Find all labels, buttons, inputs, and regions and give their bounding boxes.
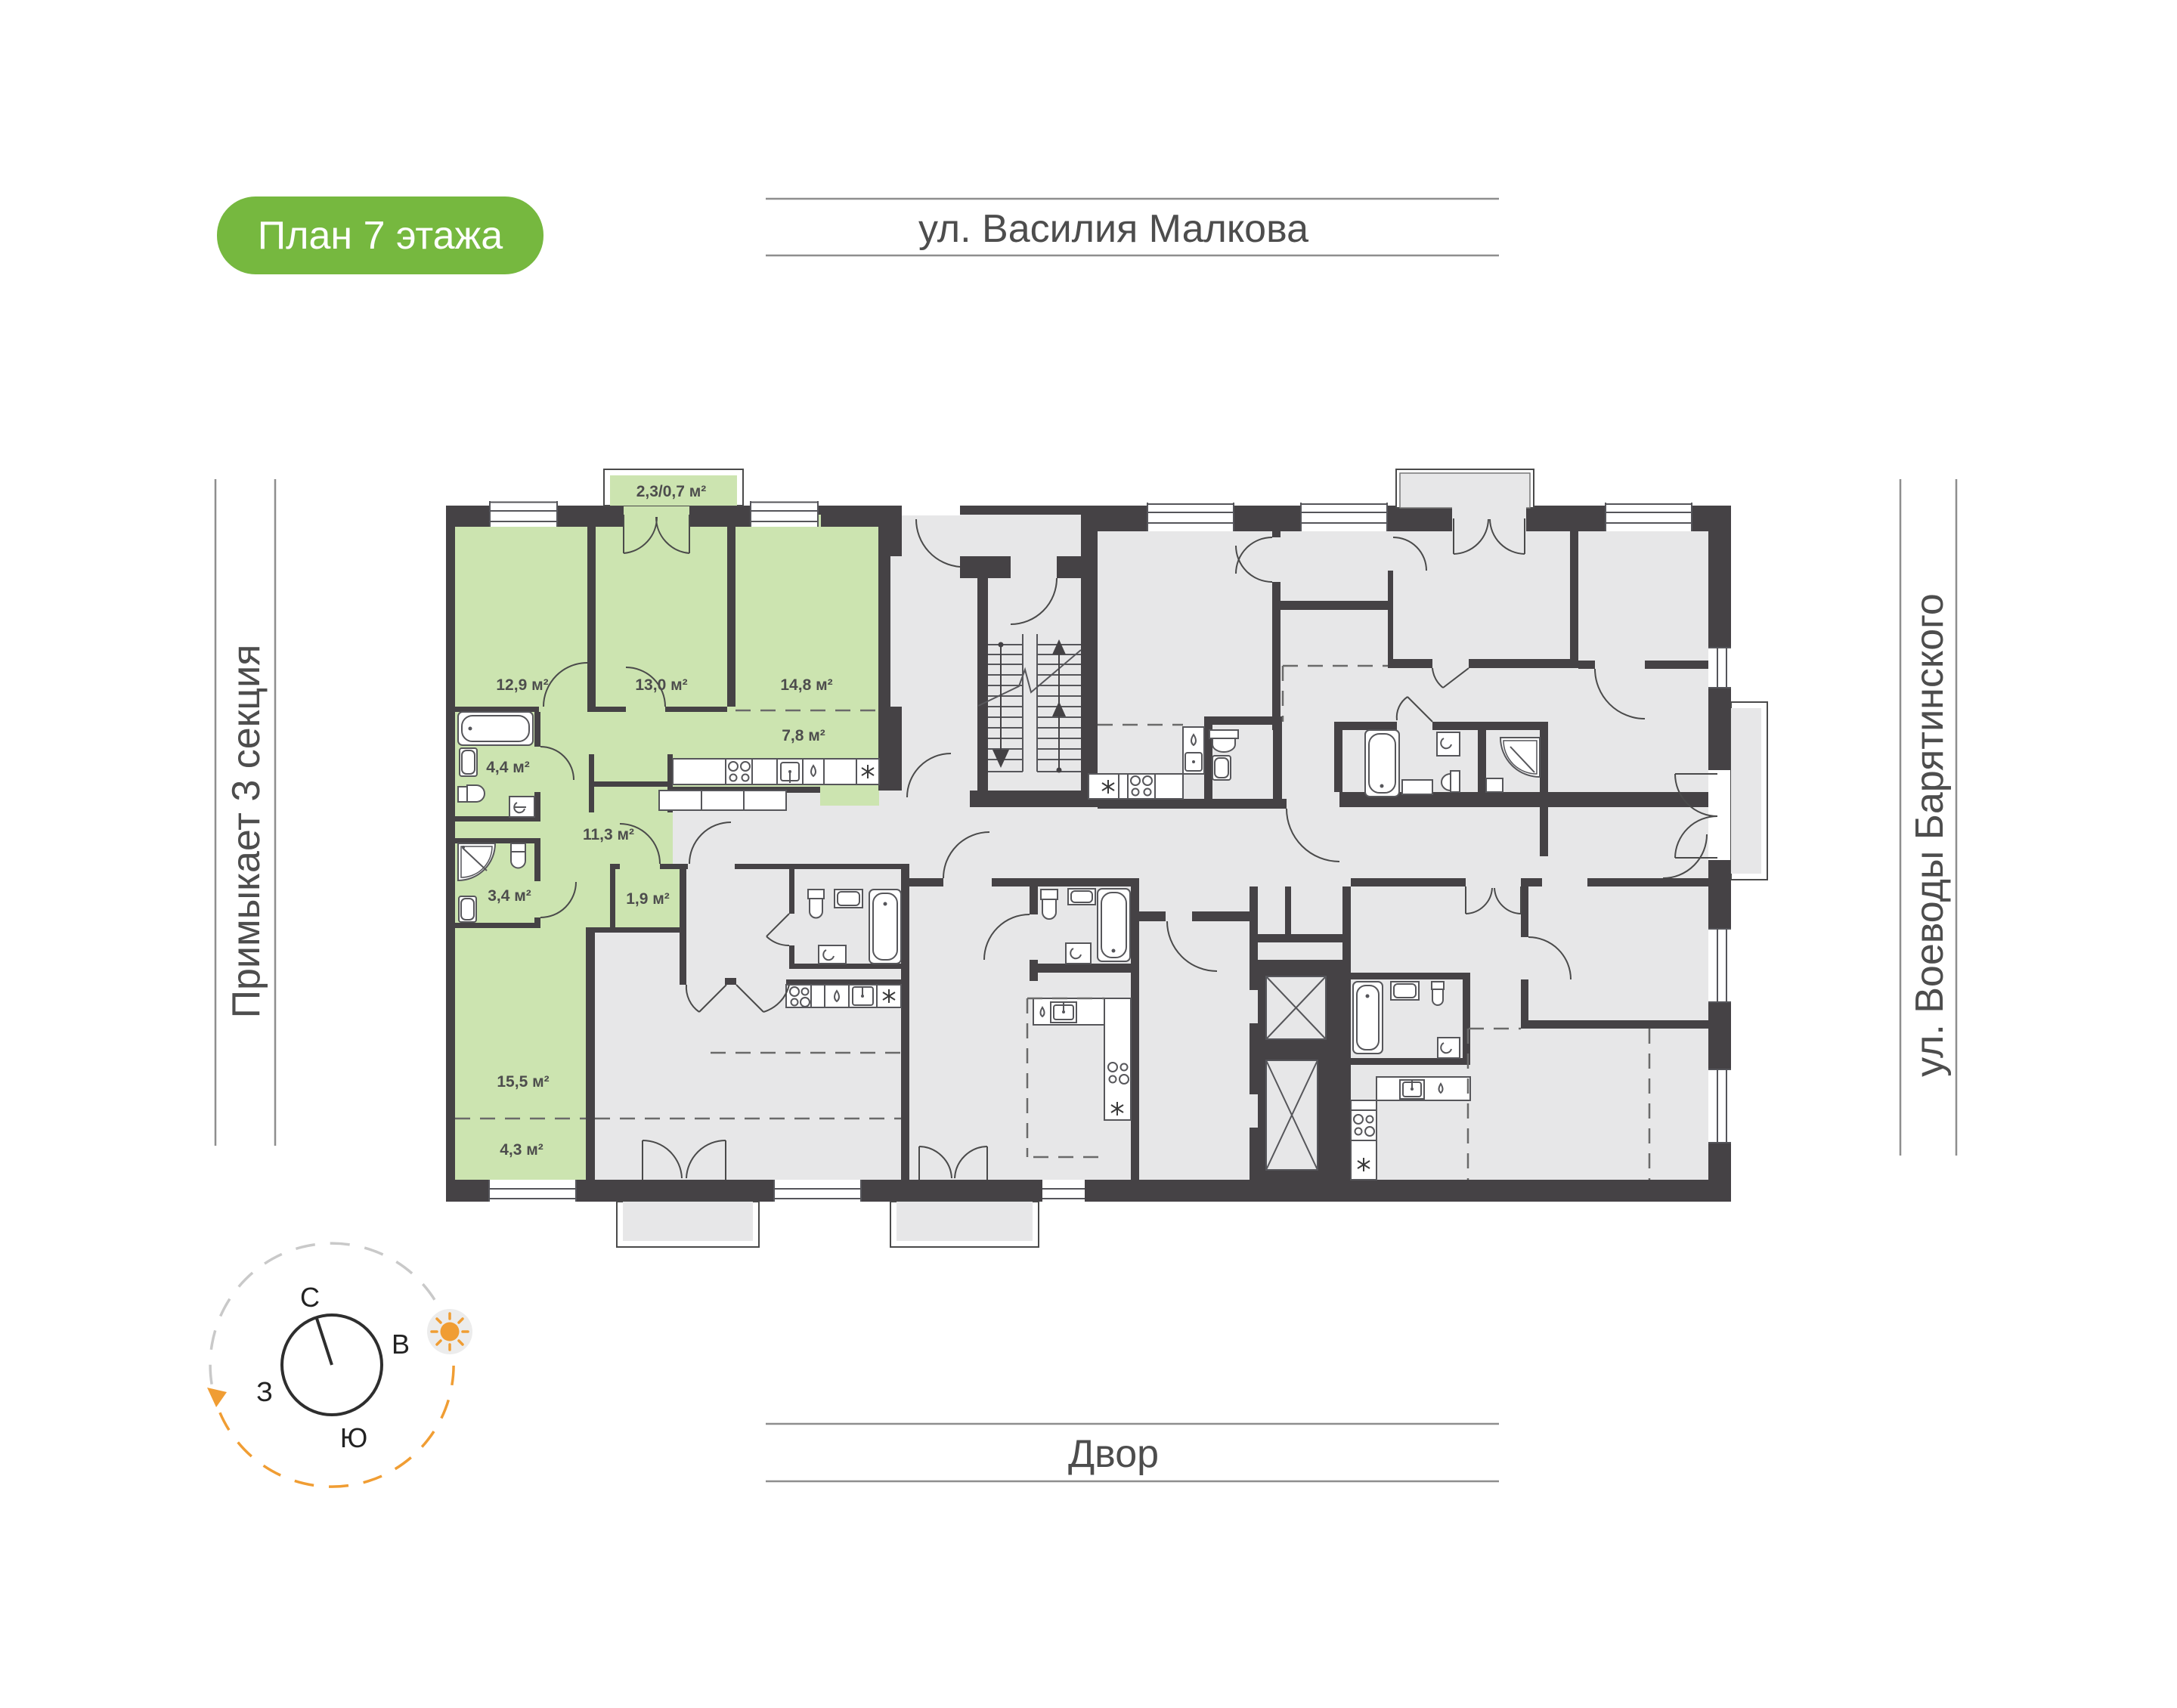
svg-text:Двор: Двор: [1068, 1432, 1159, 1476]
svg-text:7,8 м²: 7,8 м²: [782, 727, 825, 744]
svg-text:4,3 м²: 4,3 м²: [500, 1141, 543, 1159]
svg-text:Ю: Ю: [340, 1422, 367, 1453]
svg-text:3,4 м²: 3,4 м²: [488, 887, 531, 905]
svg-text:2,3/0,7 м²: 2,3/0,7 м²: [636, 483, 707, 500]
svg-text:13,0 м²: 13,0 м²: [635, 676, 687, 694]
svg-text:15,5 м²: 15,5 м²: [497, 1073, 549, 1091]
svg-text:План 7 этажа: План 7 этажа: [258, 214, 503, 258]
svg-text:С: С: [300, 1282, 320, 1313]
svg-text:1,9 м²: 1,9 м²: [626, 890, 670, 908]
svg-text:Примыкает 3 секция: Примыкает 3 секция: [225, 645, 268, 1019]
svg-text:ул. Василия Малкова: ул. Василия Малкова: [918, 207, 1308, 251]
svg-text:З: З: [256, 1376, 273, 1407]
svg-text:4,4 м²: 4,4 м²: [486, 759, 530, 776]
svg-text:ул. Воеводы Барятинского: ул. Воеводы Барятинского: [1908, 593, 1952, 1077]
svg-text:14,8 м²: 14,8 м²: [780, 676, 832, 694]
svg-text:11,3 м²: 11,3 м²: [583, 826, 634, 843]
svg-text:12,9 м²: 12,9 м²: [496, 676, 548, 694]
svg-text:В: В: [392, 1329, 410, 1360]
